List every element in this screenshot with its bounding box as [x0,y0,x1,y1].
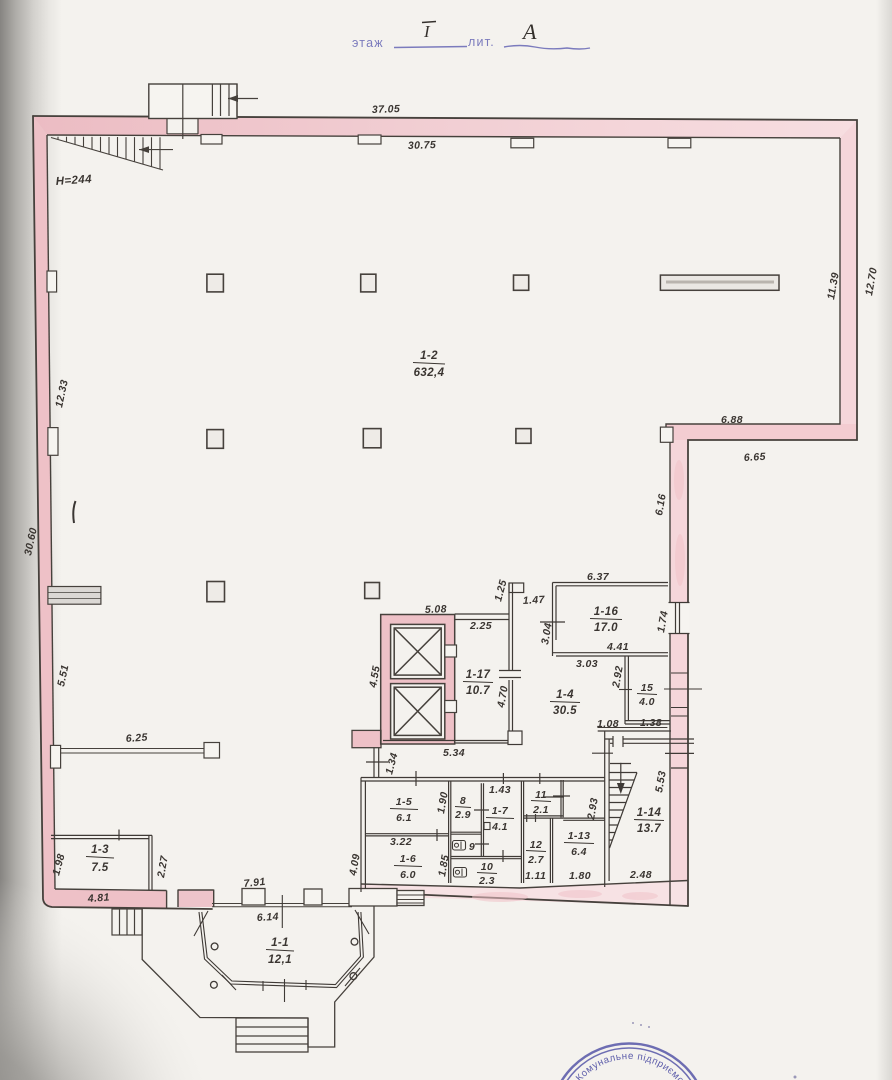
svg-text:1.11: 1.11 [525,870,546,882]
svg-text:5.08: 5.08 [425,603,447,616]
svg-text:4.1: 4.1 [491,821,508,833]
svg-text:6.88: 6.88 [721,414,743,426]
svg-text:30.5: 30.5 [553,705,577,717]
svg-text:6.65: 6.65 [744,451,767,464]
svg-text:2.9: 2.9 [454,809,471,821]
svg-text:1-13: 1-13 [568,830,591,842]
svg-text:37.05: 37.05 [372,103,401,116]
svg-text:1-16: 1-16 [594,606,619,618]
svg-text:2.48: 2.48 [629,869,652,881]
svg-text:3.03: 3.03 [576,658,598,670]
svg-text:10.7: 10.7 [466,685,490,697]
svg-text:2.3: 2.3 [478,875,495,887]
svg-text:1-7: 1-7 [492,805,509,817]
svg-text:1-1: 1-1 [271,937,289,949]
svg-text:30.75: 30.75 [408,139,437,152]
svg-text:7.5: 7.5 [91,862,108,874]
svg-text:6.0: 6.0 [400,869,416,881]
svg-text:1.43: 1.43 [489,784,511,796]
svg-text:6.4: 6.4 [571,846,587,858]
svg-text:12,1: 12,1 [268,954,292,966]
svg-text:Н=244: Н=244 [55,173,92,188]
svg-text:8: 8 [460,795,466,807]
svg-text:9: 9 [469,841,475,853]
svg-text:4.0: 4.0 [638,696,655,708]
svg-text:2.1: 2.1 [532,804,549,816]
svg-text:1.80: 1.80 [569,870,591,882]
svg-text:2.7: 2.7 [527,854,545,866]
svg-text:1.08: 1.08 [597,718,619,730]
svg-text:1-14: 1-14 [637,807,662,819]
svg-text:6.14: 6.14 [257,911,280,924]
svg-text:3.22: 3.22 [390,836,412,848]
svg-text:11: 11 [535,789,547,801]
svg-text:13.7: 13.7 [637,823,661,835]
svg-text:7.91: 7.91 [243,876,266,890]
svg-text:1.47: 1.47 [523,594,546,607]
svg-text:4.41: 4.41 [606,641,629,653]
svg-text:1-17: 1-17 [466,669,491,681]
svg-text:лит.: лит. [468,35,495,49]
svg-text:632,4: 632,4 [414,367,445,379]
svg-text:1-5: 1-5 [396,796,412,808]
svg-text:1-4: 1-4 [556,689,574,701]
svg-text:15: 15 [641,682,653,694]
svg-text:5.34: 5.34 [443,747,465,759]
svg-text:10: 10 [481,861,493,873]
svg-text:1-2: 1-2 [420,350,438,362]
svg-text:1-3: 1-3 [91,844,109,856]
svg-text:этаж: этаж [352,36,384,50]
svg-text:6.1: 6.1 [396,812,412,824]
svg-text:1-6: 1-6 [400,853,416,865]
svg-text:2.25: 2.25 [469,620,492,632]
svg-text:1.38: 1.38 [640,717,662,729]
svg-text:4.81: 4.81 [86,891,110,905]
svg-text:А: А [521,19,537,44]
svg-text:12: 12 [530,839,542,851]
svg-text:6.37: 6.37 [587,571,610,583]
svg-text:6.25: 6.25 [125,731,148,745]
svg-text:17.0: 17.0 [594,622,618,634]
